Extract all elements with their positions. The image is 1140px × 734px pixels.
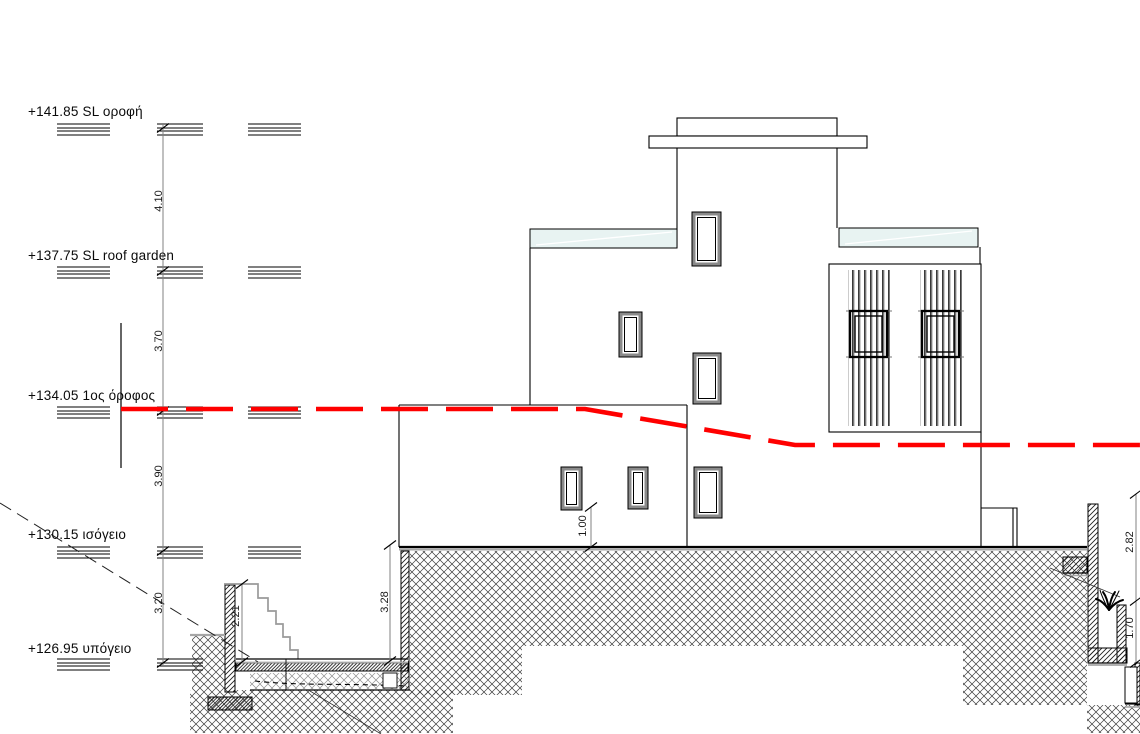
louver-slats-right — [920, 270, 962, 426]
window-ground-c — [694, 467, 722, 518]
earth-hatch — [190, 551, 1140, 733]
elevation-drawing-canvas: +141.85 SL οροφή +137.75 SL roof garden … — [0, 0, 1140, 734]
windows — [561, 212, 722, 518]
dim-roofgarden-to-first: 3.70 — [153, 330, 165, 351]
dim-ground-to-basement: 3.20 — [153, 592, 165, 613]
dim-first-to-ground: 3.90 — [153, 465, 165, 486]
dim-sill-height: 1.00 — [577, 515, 589, 536]
louver-slats-left — [848, 270, 890, 426]
window-tower — [692, 212, 721, 266]
roof-pergola — [677, 118, 837, 136]
dim-roof-to-roofgarden: 4.10 — [153, 190, 165, 211]
level-label-roof-garden: +137.75 SL roof garden — [28, 248, 174, 263]
dim-stair-height: 2.21 — [230, 605, 242, 626]
window-ground-b — [628, 467, 648, 509]
dim-right-wall-upper: 2.82 — [1124, 531, 1136, 552]
parapet-slabs — [530, 228, 978, 248]
roof-slab — [649, 136, 867, 148]
louver-panel — [829, 264, 981, 432]
dim-right-wall-lower: 1.70 — [1124, 617, 1136, 638]
building-outline — [399, 118, 1087, 547]
window-ground-a — [561, 467, 582, 510]
window-first-b — [693, 353, 721, 404]
level-label-roof: +141.85 SL οροφή — [28, 104, 143, 119]
level-label-basement: +126.95 υπόγειο — [28, 641, 131, 656]
section-drawing — [0, 0, 1140, 734]
dim-basement-depth: 3.28 — [379, 591, 391, 612]
window-first-a — [619, 312, 642, 357]
level-label-first-floor: +134.05 1ος όροφος — [28, 388, 155, 403]
level-label-ground: +130.15 ισόγειο — [28, 527, 126, 542]
